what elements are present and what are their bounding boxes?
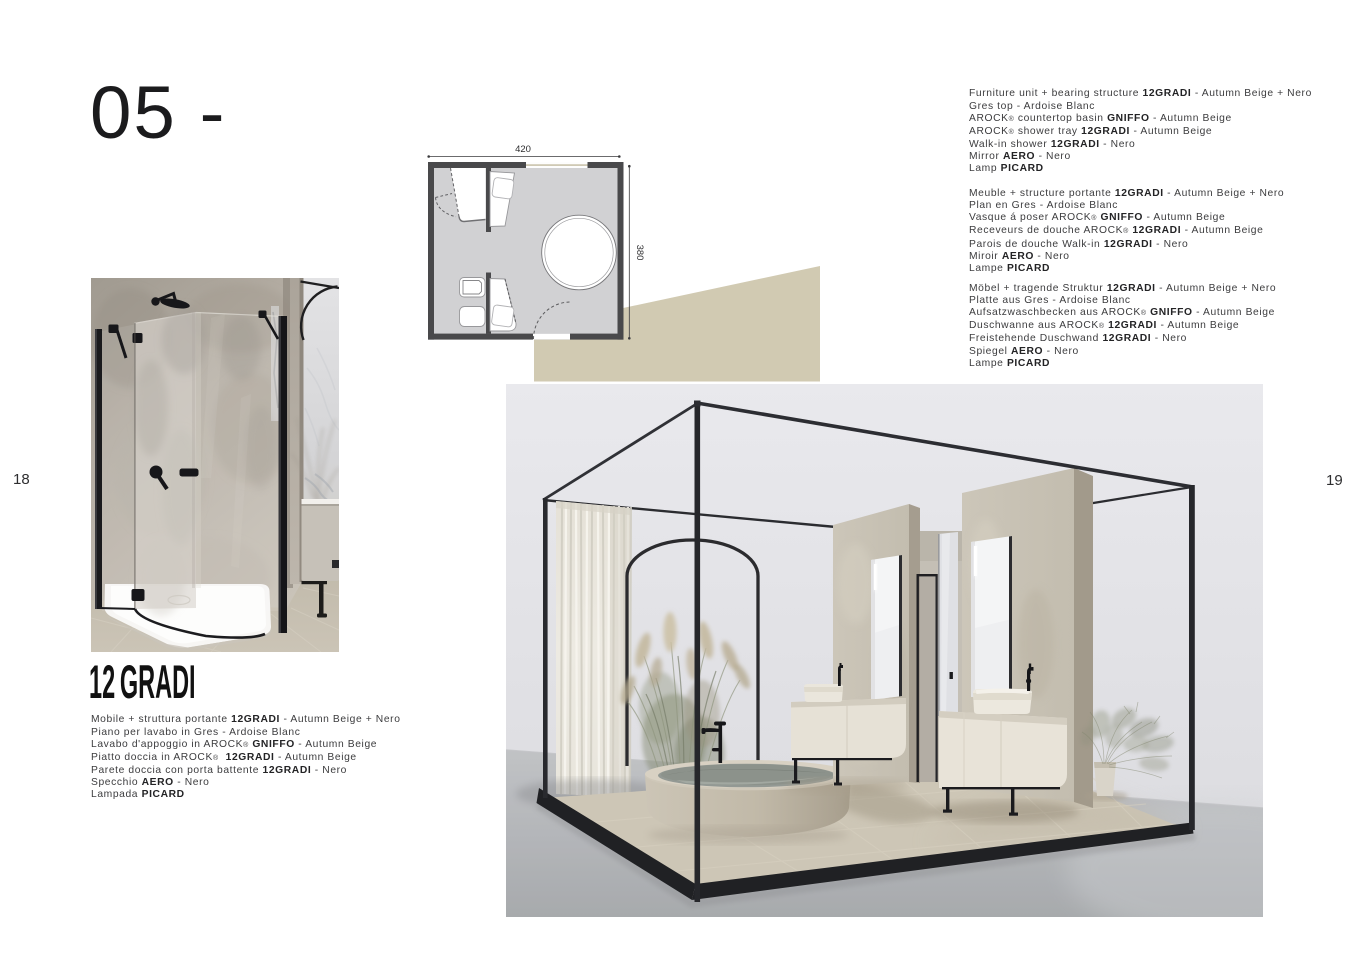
svg-text:380: 380 <box>634 245 645 261</box>
svg-text:420: 420 <box>515 144 531 155</box>
